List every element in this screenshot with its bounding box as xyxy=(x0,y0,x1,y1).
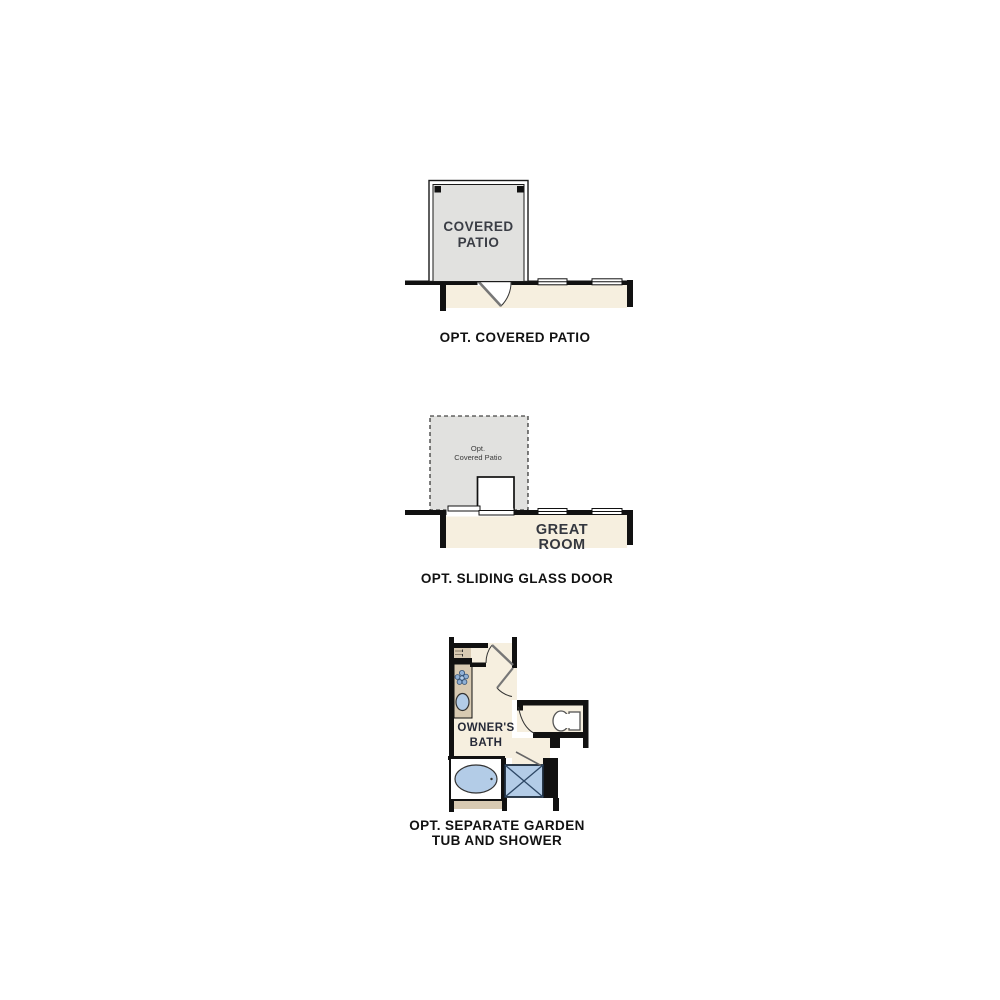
patio-post-icon xyxy=(435,186,442,193)
floor-plan-svg: COVERED PATIO OPT. COVERED PATIO xyxy=(0,0,1000,1000)
wall-left xyxy=(440,514,446,548)
toilet-icon xyxy=(553,711,580,731)
sliding-glass-door-figure: Opt. Covered Patio GREAT ROOM OPT. SLIDI… xyxy=(405,416,633,586)
sink-icon xyxy=(456,694,469,711)
wall-stub xyxy=(470,663,486,668)
bath-label-line2: BATH xyxy=(470,737,503,749)
wall-top xyxy=(449,643,488,648)
garden-tub-shower-figure: OWNER'S BATH OPT. SEPARATE GARDEN TUB AN… xyxy=(409,637,588,848)
window-icon xyxy=(538,509,567,515)
wall-toilet-right xyxy=(583,700,589,748)
floor-plan-page: COVERED PATIO OPT. COVERED PATIO xyxy=(0,0,1000,1000)
wall-toilet-bottom xyxy=(533,732,589,738)
figure-caption-line1: OPT. SEPARATE GARDEN xyxy=(409,818,585,833)
figure-caption: OPT. COVERED PATIO xyxy=(440,330,591,345)
bath-label-line1: OWNER'S xyxy=(457,722,514,734)
wall-right xyxy=(627,510,633,545)
wall-bottom-stub-right xyxy=(553,798,559,811)
great-room-label-line2: ROOM xyxy=(538,537,585,553)
wall-toilet-jamb xyxy=(517,706,523,711)
patio-note-line2: Covered Patio xyxy=(454,453,502,462)
wall-toilet-top xyxy=(517,700,588,706)
patio-note-line1: Opt. xyxy=(471,444,485,453)
wall-closet xyxy=(451,658,472,664)
wall-right xyxy=(627,280,633,307)
figure-caption: OPT. SLIDING GLASS DOOR xyxy=(421,571,613,586)
door-recess xyxy=(478,477,515,510)
figure-caption-line2: TUB AND SHOWER xyxy=(432,833,562,848)
doorway-floor xyxy=(512,668,517,700)
patio-room-label-line2: PATIO xyxy=(458,235,500,250)
window-icon xyxy=(592,279,622,285)
patio-post-icon xyxy=(517,186,524,193)
window-icon xyxy=(592,509,622,515)
window-icon xyxy=(538,279,567,285)
interior-floor xyxy=(446,285,627,308)
wall-step xyxy=(550,738,560,748)
wall-shower-right xyxy=(543,758,558,798)
bathtub-icon xyxy=(450,758,502,800)
patio-room-label-line1: COVERED xyxy=(443,219,513,234)
wall-below-tub xyxy=(454,800,502,809)
covered-patio-figure: COVERED PATIO OPT. COVERED PATIO xyxy=(405,181,633,346)
wall-left xyxy=(440,284,446,311)
great-room-label-line1: GREAT xyxy=(536,522,588,538)
